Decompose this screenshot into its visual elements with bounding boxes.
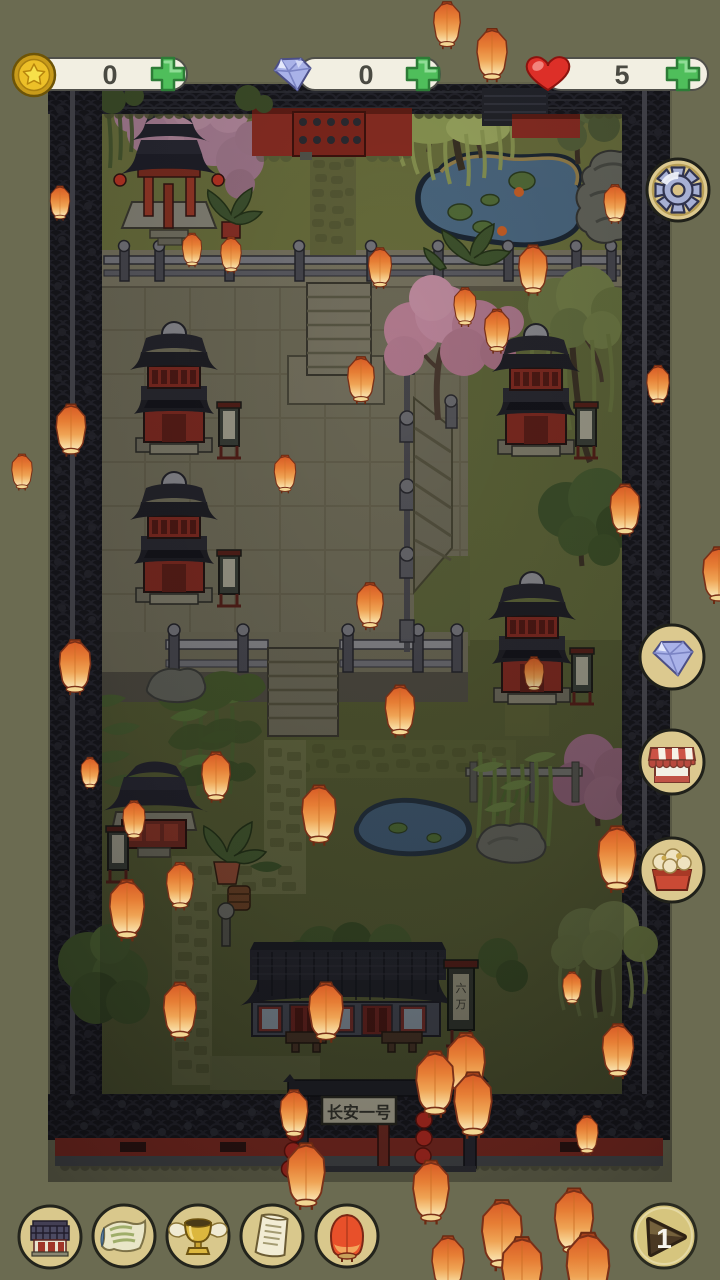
svg-text:1: 1 xyxy=(656,1223,672,1254)
svg-text:0: 0 xyxy=(102,60,117,90)
svg-text:0: 0 xyxy=(358,60,373,90)
svg-text:5: 5 xyxy=(614,60,629,90)
